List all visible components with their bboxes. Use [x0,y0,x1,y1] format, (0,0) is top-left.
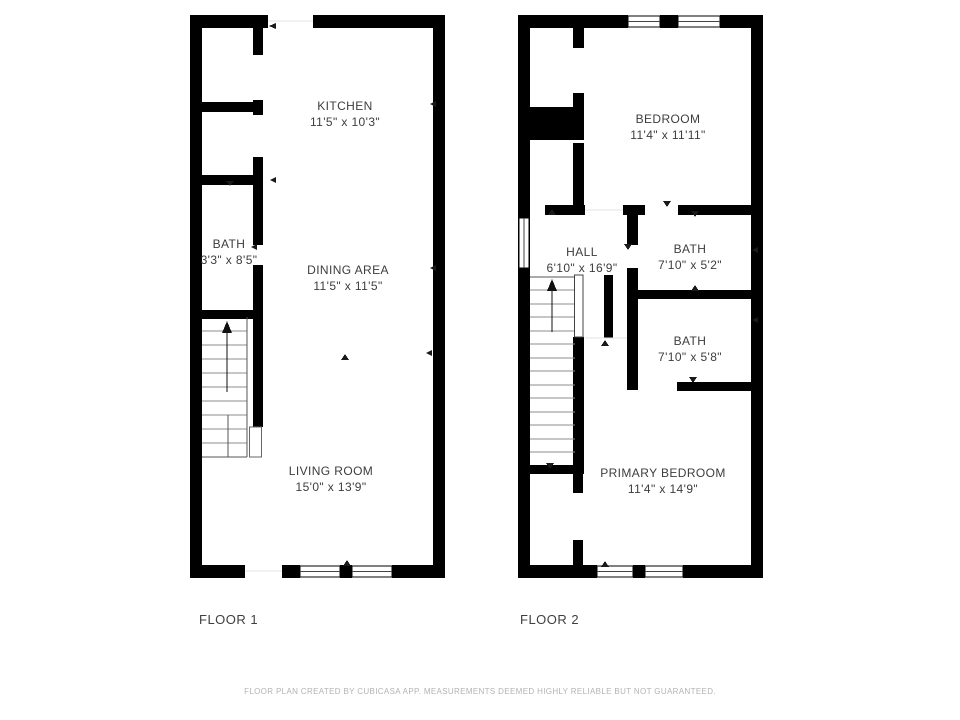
room-dimensions: 11'5" x 11'5" [307,278,389,294]
room-dimensions: 7'10" x 5'8" [658,349,722,365]
room-dimensions: 11'4" x 11'11" [630,127,705,143]
room-name: PRIMARY BEDROOM [600,465,726,481]
room-name: DINING AREA [307,262,389,278]
room-label-living-room: LIVING ROOM 15'0" x 13'9" [289,463,373,495]
floor-1-title: FLOOR 1 [199,612,258,627]
room-dimensions: 3'3" x 8'5" [201,252,258,268]
stair-up-arrow-head [222,321,232,333]
room-label-hall: HALL 6'10" x 16'9" [546,244,617,276]
disclaimer-text: FLOOR PLAN CREATED BY CUBICASA APP. MEAS… [0,687,960,696]
room-dimensions: 6'10" x 16'9" [546,260,617,276]
room-name: BATH [658,333,722,349]
room-label-primary-bedroom: PRIMARY BEDROOM 11'4" x 14'9" [600,465,726,497]
room-label-dining-area: DINING AREA 11'5" x 11'5" [307,262,389,294]
room-name: BEDROOM [630,111,705,127]
floor-1-staircase [202,317,262,457]
room-dimensions: 11'4" x 14'9" [600,481,726,497]
room-label-bath-upper: BATH 7'10" x 5'2" [658,241,722,273]
room-label-kitchen: KITCHEN 11'5" x 10'3" [310,98,380,130]
room-name: BATH [201,236,258,252]
room-name: KITCHEN [310,98,380,114]
room-label-bedroom: BEDROOM 11'4" x 11'11" [630,111,705,143]
room-label-bath-lower: BATH 7'10" x 5'8" [658,333,722,365]
room-name: LIVING ROOM [289,463,373,479]
floorplan-canvas [0,0,960,720]
stair-railing [575,275,584,337]
stair-treads [202,331,247,443]
stair-up-arrow-head [547,279,557,291]
floor-2-title: FLOOR 2 [520,612,579,627]
floorplan-page: KITCHEN 11'5" x 10'3" BATH 3'3" x 8'5" D… [0,0,960,720]
room-name: HALL [546,244,617,260]
room-dimensions: 15'0" x 13'9" [289,479,373,495]
room-dimensions: 7'10" x 5'2" [658,257,722,273]
room-label-bath-floor1: BATH 3'3" x 8'5" [201,236,258,268]
room-dimensions: 11'5" x 10'3" [310,114,380,130]
understair-door [250,427,262,457]
room-name: BATH [658,241,722,257]
